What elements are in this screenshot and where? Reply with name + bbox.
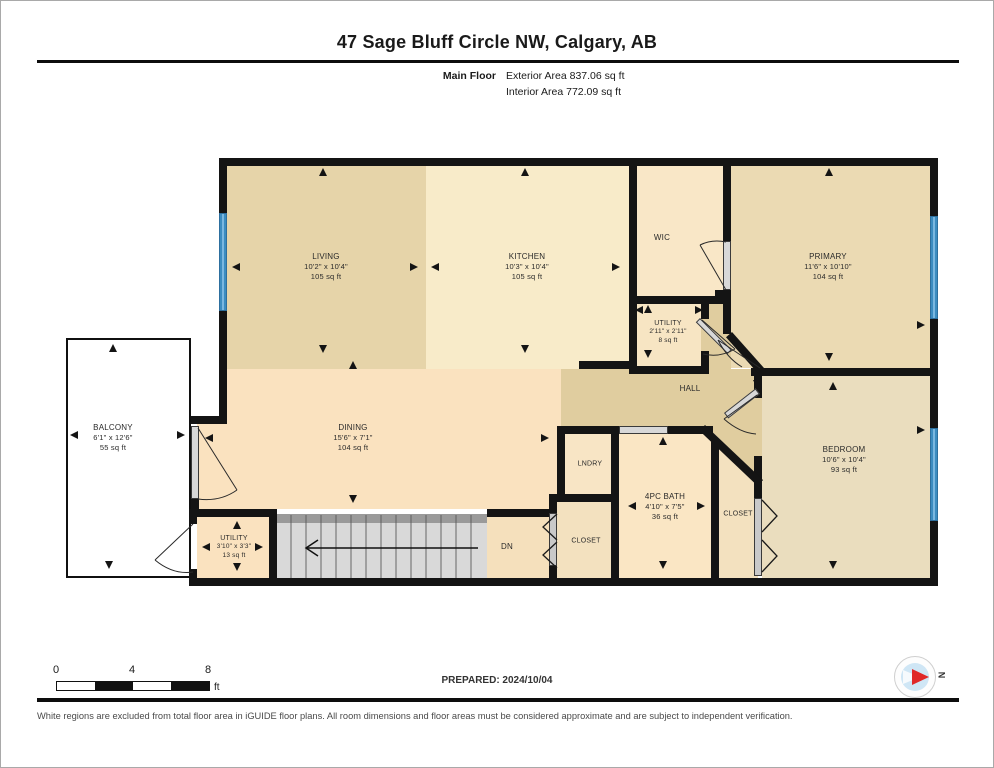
closet-mid-bifold-track (549, 513, 557, 566)
wall (751, 368, 930, 376)
measure-arrow (917, 426, 925, 434)
wall (723, 304, 731, 334)
measure-arrow (521, 168, 529, 176)
wall (715, 290, 731, 304)
closet-right-label: CLOSET (723, 509, 752, 518)
wall (711, 441, 719, 578)
interior-area: Interior Area 772.09 sq ft (506, 86, 621, 98)
measure-arrow (521, 345, 529, 353)
exterior-area: Exterior Area 837.06 sq ft (506, 70, 624, 82)
measure-arrow (255, 543, 263, 551)
measure-arrow (697, 502, 705, 510)
prepared-date: PREPARED: 2024/10/04 (1, 675, 993, 686)
compass-icon: N (894, 656, 958, 702)
balcony-label: BALCONY6'1" x 12'6"55 sq ft (93, 423, 133, 453)
measure-arrow (917, 321, 925, 329)
room-wic-floor (637, 166, 723, 296)
wall (629, 158, 637, 374)
balcony-door (191, 426, 199, 499)
measure-arrow (753, 380, 761, 388)
measure-arrow (635, 306, 643, 314)
room-bedroom-label: BEDROOM10'6" x 10'4"93 sq ft (822, 445, 866, 475)
page-title: 47 Sage Bluff Circle NW, Calgary, AB (1, 32, 993, 53)
wall (189, 509, 277, 517)
closet-right-bifold-track (754, 498, 762, 576)
room-laundry-label: LNDRY (578, 459, 603, 468)
wall (611, 434, 619, 578)
measure-arrow (319, 345, 327, 353)
stairs-floor (277, 514, 487, 578)
window (930, 216, 938, 319)
measure-arrow (829, 382, 837, 390)
compass-needle (912, 669, 929, 685)
wall (549, 566, 557, 578)
wall (189, 578, 938, 586)
measure-arrow (177, 431, 185, 439)
measure-arrow (349, 361, 357, 369)
measure-arrow (233, 521, 241, 529)
room-dining-label: DINING15'6" x 7'1"104 sq ft (333, 423, 372, 453)
room-utility-top-label: UTILITY2'11" x 2'11"8 sq ft (649, 319, 686, 345)
stairs-top-strip (277, 514, 487, 523)
wall (557, 426, 565, 501)
measure-arrow (829, 561, 837, 569)
compass-north-label: N (936, 672, 946, 679)
measure-arrow (612, 263, 620, 271)
wic-door (723, 241, 731, 290)
room-kitchen-label: KITCHEN10'3" x 10'4"105 sq ft (505, 252, 549, 282)
floor-label: Main Floor (376, 70, 496, 82)
footer-divider (37, 698, 959, 702)
wall (189, 569, 197, 586)
measure-arrow (349, 495, 357, 503)
hall-label: HALL (680, 384, 701, 394)
wall (723, 158, 731, 241)
measure-arrow (825, 168, 833, 176)
room-wic-label: WIC (654, 233, 670, 243)
measure-arrow (410, 263, 418, 271)
stairs-down-label: DN (501, 542, 513, 552)
measure-arrow (205, 434, 213, 442)
wall (189, 509, 197, 524)
measure-arrow (644, 350, 652, 358)
measure-arrow (659, 561, 667, 569)
measure-arrow (202, 543, 210, 551)
hall-floor (561, 369, 764, 433)
window (930, 428, 938, 521)
measure-arrow (628, 502, 636, 510)
closet-mid-label: CLOSET (571, 536, 600, 545)
measure-arrow (659, 437, 667, 445)
bath-door (619, 426, 668, 434)
wall (269, 509, 277, 586)
wall (549, 494, 619, 502)
room-dining-floor (227, 369, 561, 509)
measure-arrow (233, 563, 241, 571)
balcony-outline (66, 338, 191, 578)
disclaimer-text: White regions are excluded from total fl… (37, 711, 967, 721)
measure-arrow (105, 561, 113, 569)
window (219, 213, 227, 311)
room-bath-label: 4PC BATH4'10" x 7'5"36 sq ft (645, 492, 685, 522)
measure-arrow (109, 344, 117, 352)
measure-arrow (70, 431, 78, 439)
measure-arrow (644, 305, 652, 313)
room-bedroom-floor (762, 376, 930, 578)
wall (191, 416, 227, 424)
room-primary-label: PRIMARY11'6" x 10'10"104 sq ft (804, 252, 852, 282)
floorplan-page: 47 Sage Bluff Circle NW, Calgary, AB Mai… (0, 0, 994, 768)
wall (629, 366, 709, 374)
measure-arrow (319, 168, 327, 176)
wall (219, 158, 938, 166)
wall (701, 351, 709, 374)
measure-arrow (695, 306, 703, 314)
stair-landing-floor (487, 517, 549, 578)
measure-arrow (825, 353, 833, 361)
measure-arrow (232, 263, 240, 271)
header-divider (37, 60, 959, 63)
measure-arrow (541, 434, 549, 442)
measure-arrow (431, 263, 439, 271)
room-utility-bottom-label: UTILITY3'10" x 3'3"13 sq ft (217, 534, 251, 560)
wall (487, 509, 557, 517)
room-living-label: LIVING10'2" x 10'4"105 sq ft (304, 252, 348, 282)
